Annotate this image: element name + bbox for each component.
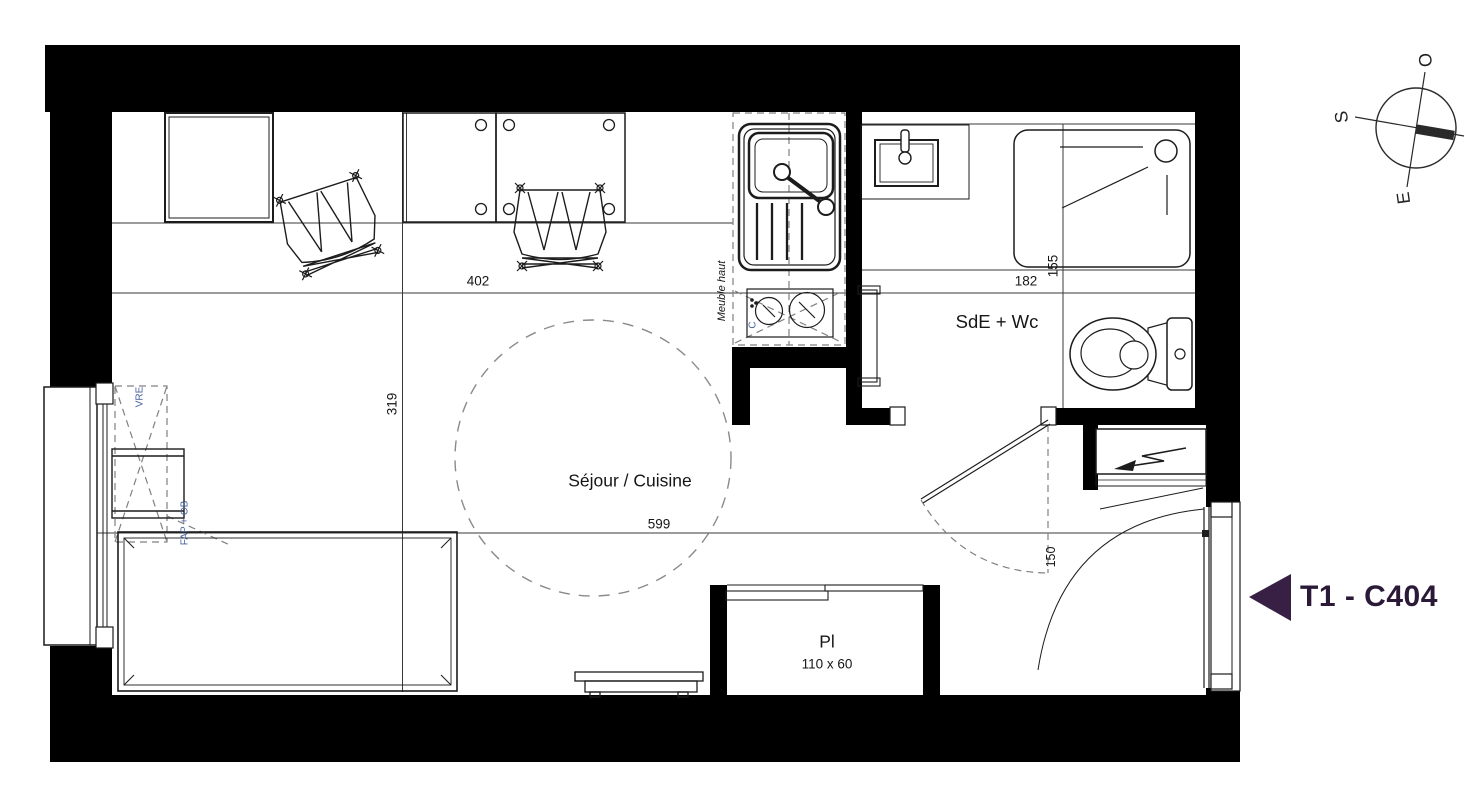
room-label-living: Séjour / Cuisine <box>568 471 692 492</box>
walls <box>45 45 1240 762</box>
toilet <box>1070 318 1192 390</box>
annotation-cooktop: C <box>748 321 759 328</box>
cooktop <box>747 289 833 337</box>
chair <box>272 169 387 281</box>
door-jambs <box>890 407 1056 425</box>
dining-tables <box>403 113 625 222</box>
dim-shower-depth: 155 <box>1046 255 1061 278</box>
clearance-circle <box>455 320 731 596</box>
floor-plan-canvas: Séjour / Cuisine SdE + Wc Pl 110 x 60 40… <box>0 0 1465 800</box>
bathroom-door <box>921 420 1050 503</box>
window <box>44 383 113 648</box>
dim-living-depth: 319 <box>385 393 400 416</box>
washbasin <box>861 125 969 199</box>
radiator <box>858 286 880 386</box>
dim-living-length: 599 <box>648 517 671 532</box>
chair <box>514 183 606 271</box>
closet-sliding-doors <box>726 585 923 600</box>
tv-bench <box>575 672 703 697</box>
dim-bathroom-width: 182 <box>1015 274 1038 289</box>
annotation-upper-cabinet: Meuble haut <box>716 261 728 322</box>
dim-entry: 150 <box>1044 547 1058 568</box>
dim-living-width: 402 <box>467 274 490 289</box>
closet-size-label: 110 x 60 <box>802 657 853 672</box>
shower <box>1014 130 1190 267</box>
bed <box>118 532 457 691</box>
compass-west-label: O <box>1415 52 1438 69</box>
closet-label: Pl <box>819 632 835 653</box>
unit-label: T1 - C404 <box>1300 580 1438 614</box>
annotation-window-top: VRE <box>135 387 146 408</box>
unit-marker-triangle <box>1249 574 1291 621</box>
entry-door <box>1038 502 1240 691</box>
compass-rose <box>1355 72 1464 187</box>
reference-lines <box>97 112 1209 692</box>
annotation-window-bottom: FAP + OB <box>180 501 191 546</box>
wardrobe <box>165 113 273 222</box>
entry-niche <box>1096 429 1206 509</box>
floor-plan-drawing <box>0 0 1465 800</box>
room-label-bathroom: SdE + Wc <box>956 311 1039 333</box>
